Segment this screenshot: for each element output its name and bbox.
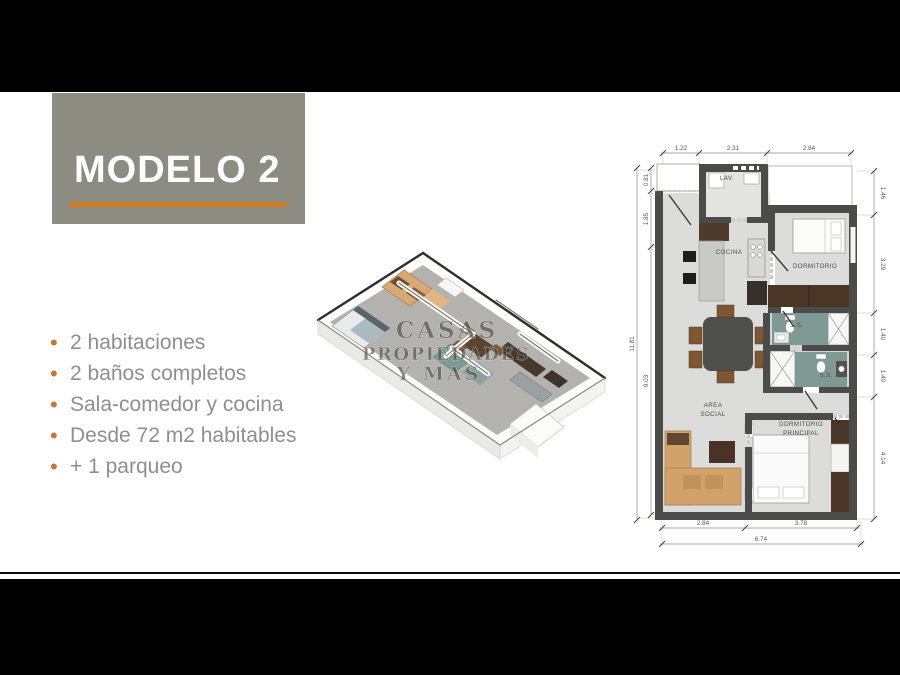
room-label-bath2: S.S. (819, 372, 832, 379)
room-label-cocina: COCINA (716, 249, 743, 256)
bullet-icon: • (50, 358, 58, 389)
bullet-icon: • (50, 327, 58, 358)
title-underline (70, 202, 287, 207)
kitchen-cabinet (699, 223, 729, 241)
coffee-table (709, 441, 735, 463)
chair (717, 371, 734, 383)
window (851, 227, 856, 263)
stool (683, 273, 696, 284)
terrace (768, 166, 852, 211)
fridge (747, 281, 767, 305)
watermark-line2: PROPIEDADES (362, 344, 530, 365)
feature-item: •Desde 72 m2 habitables (50, 420, 296, 451)
model-title-card: MODELO 2 (52, 93, 305, 224)
feature-item: •2 habitaciones (50, 327, 296, 358)
room-label-area-social-2: SOCIAL (700, 411, 725, 418)
watermark-line3: Y MAS (396, 363, 482, 385)
top-letterbox-bar (0, 0, 900, 92)
dim-bottom-total: 6.74 (755, 536, 768, 543)
chair (689, 327, 702, 344)
dim-bottom-2: 3.78 (795, 520, 808, 527)
dim-right-2: 3.29 (879, 258, 886, 271)
entry-landing (657, 164, 700, 191)
principal-closet (831, 420, 849, 444)
dim-right-4: 1.40 (879, 370, 886, 383)
dim-left-2: 1.85 (643, 212, 650, 225)
room-label-bath1: S.S. (790, 322, 803, 329)
bottom-letterbox-bar (0, 579, 900, 675)
room-label-dormitorio: DORMITORIO (793, 263, 837, 270)
dim-top-1: 1.22 (675, 145, 688, 152)
feature-item: •Sala-comedor y cocina (50, 389, 296, 420)
bullet-icon: • (50, 420, 58, 451)
dim-left-3: 9.03 (643, 374, 650, 387)
stove (748, 239, 765, 277)
bullet-icon: • (50, 389, 58, 420)
room-label-area-social-1: AREA (704, 402, 723, 409)
dim-right-1: 1.46 (879, 187, 886, 200)
chair (689, 351, 702, 368)
bullet-icon: • (50, 451, 58, 482)
dim-top-3: 2.84 (803, 145, 816, 152)
dim-right-5: 4.14 (879, 452, 886, 465)
page-title: MODELO 2 (74, 151, 280, 189)
flyer-page: MODELO 2 •2 habitaciones •2 baños comple… (0, 0, 900, 675)
dim-bottom-1: 2.84 (697, 520, 710, 527)
feature-item: •+ 1 parqueo (50, 451, 296, 482)
room-label-lav: LAV. (720, 175, 734, 182)
dorm-closet (768, 285, 849, 307)
dim-left-1: 0.81 (643, 173, 650, 186)
dining-table (703, 317, 753, 371)
dim-top-2: 2.31 (727, 145, 740, 152)
room-label-principal-2: PRINCIPAL (783, 430, 819, 437)
dim-right-3: 1.40 (879, 328, 886, 341)
isometric-floor-plan: CASAS PROPIEDADES Y MAS (300, 228, 630, 493)
floor-plan-2d: LAV. COCINA DORMITORIO S.S. S.S. AREA SO… (625, 135, 900, 575)
chair (717, 305, 734, 317)
stool (683, 251, 696, 262)
room-label-principal-1: DORMITORIO (779, 421, 823, 428)
feature-list: •2 habitaciones •2 baños completos •Sala… (50, 327, 296, 482)
feature-item: •2 baños completos (50, 358, 296, 389)
dryer (744, 173, 759, 184)
watermark-line1: CASAS (396, 317, 498, 344)
dim-left-total: 11.81 (629, 336, 636, 352)
